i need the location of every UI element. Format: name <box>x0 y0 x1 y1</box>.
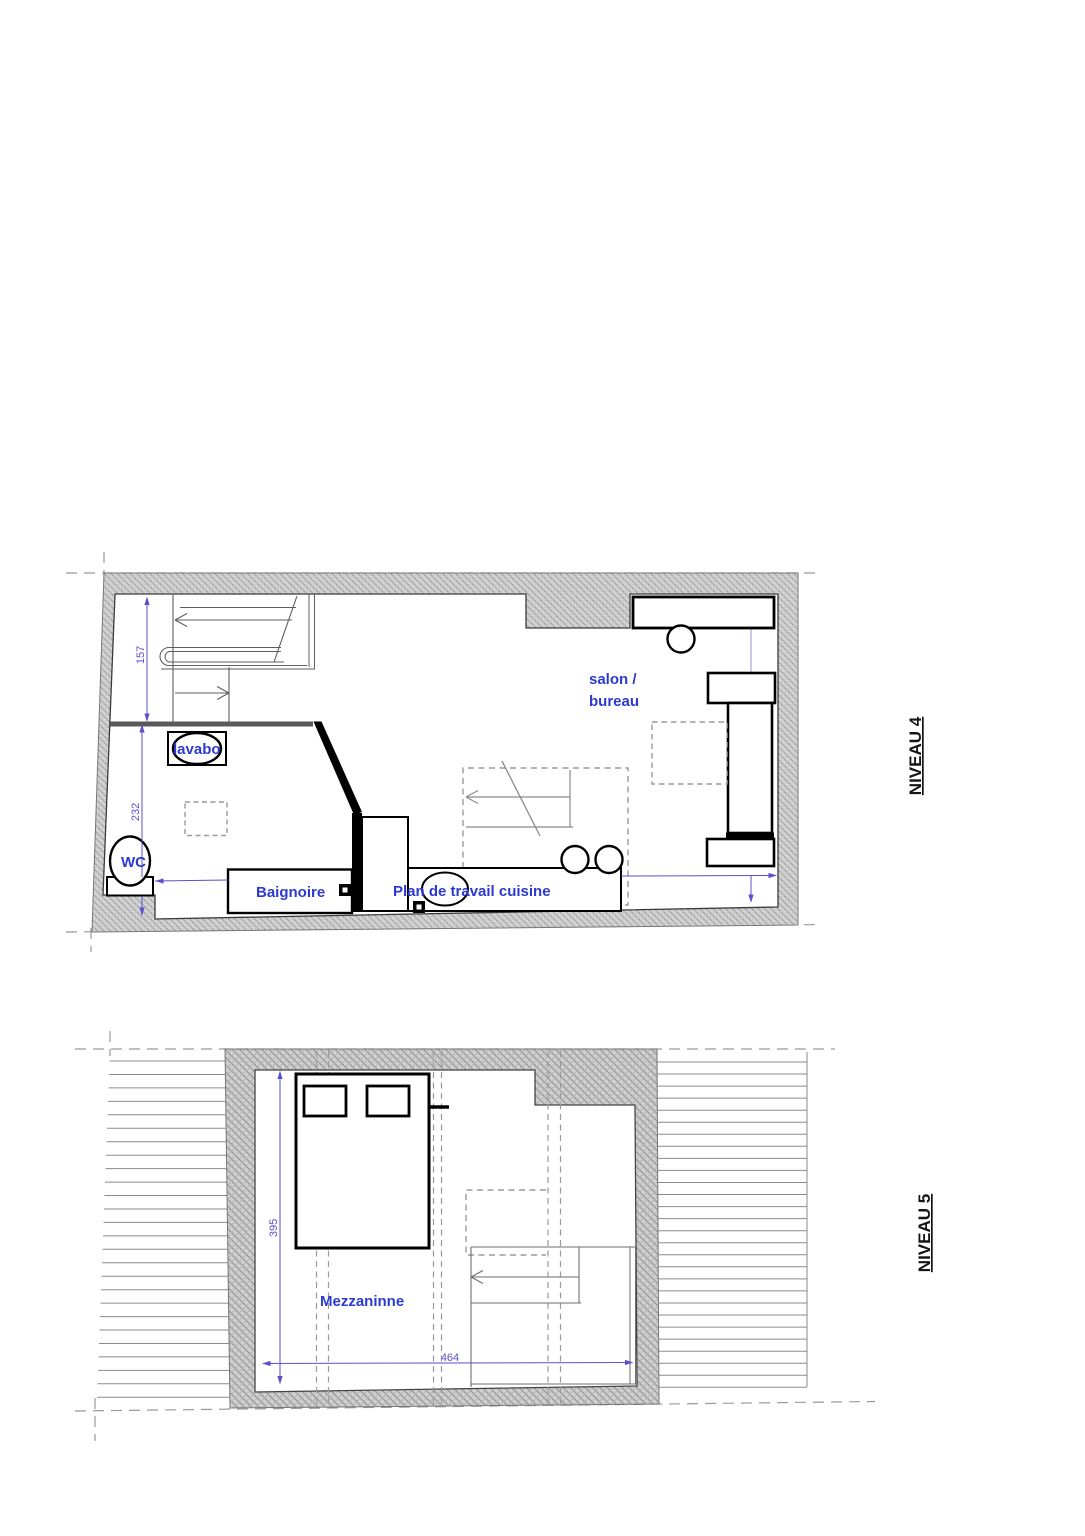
svg-text:464: 464 <box>441 1352 459 1364</box>
svg-text:Plan de travail cuisine: Plan de travail cuisine <box>393 883 551 900</box>
svg-text:lavabo: lavabo <box>173 741 221 758</box>
svg-text:salon /: salon / <box>589 671 637 688</box>
svg-text:NIVEAU 5: NIVEAU 5 <box>915 1194 934 1272</box>
svg-text:Baignoire: Baignoire <box>256 884 325 901</box>
svg-text:WC: WC <box>121 854 146 871</box>
svg-text:NIVEAU 4: NIVEAU 4 <box>906 716 925 795</box>
svg-text:bureau: bureau <box>589 693 639 710</box>
svg-text:157: 157 <box>135 646 147 664</box>
svg-text:395: 395 <box>268 1219 280 1237</box>
svg-text:Mezzaninne: Mezzaninne <box>320 1293 404 1310</box>
svg-text:232: 232 <box>130 803 142 821</box>
